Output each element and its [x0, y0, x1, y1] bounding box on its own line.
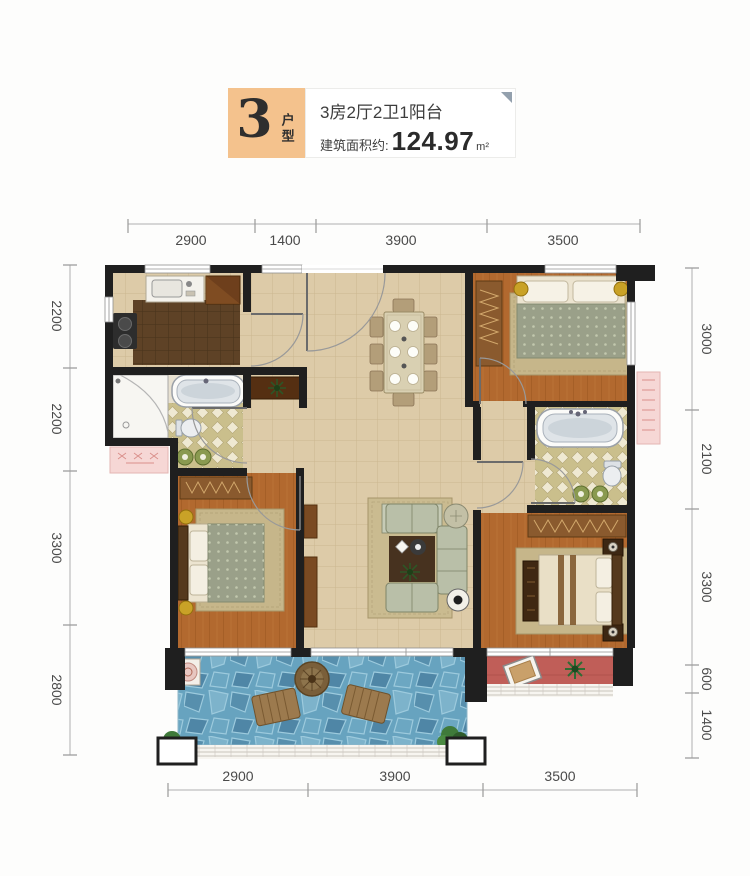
headboard [612, 555, 622, 625]
dimension-top: 2900 1400 3900 3500 [128, 219, 640, 248]
headboard [178, 526, 188, 600]
pillow [596, 558, 612, 588]
dim-label: 2200 [49, 403, 65, 434]
dining-chair [424, 371, 437, 391]
dining-chair [424, 317, 437, 337]
dining-chair [370, 371, 383, 391]
floorplan-page: { "header": { "unit_number": "3", "unit_… [0, 0, 750, 876]
dim-label: 2900 [222, 768, 253, 784]
sofa [437, 526, 467, 594]
red-balcony-window [487, 648, 613, 656]
dim-label: 2800 [49, 674, 65, 705]
pillow [523, 281, 568, 302]
wardrobe [528, 515, 626, 537]
window [145, 265, 210, 273]
tv-cabinet [304, 505, 317, 538]
ac-platform [110, 447, 168, 473]
railing-pier [447, 738, 485, 764]
master-bedroom [516, 515, 634, 641]
window [545, 265, 616, 273]
pillow [596, 592, 612, 622]
dim-label: 2100 [699, 443, 715, 474]
dim-label: 3900 [379, 768, 410, 784]
shower-cabin [113, 375, 168, 438]
wardrobe [180, 477, 252, 499]
dim-label: 3900 [385, 232, 416, 248]
dim-label: 3500 [544, 768, 575, 784]
window [262, 265, 302, 273]
kitchen-sink [152, 280, 182, 297]
dim-label: 600 [699, 667, 715, 691]
dining-chair [393, 299, 414, 312]
dining-chair [370, 344, 383, 364]
dimension-right: 3000 2100 3300 600 1400 [685, 268, 715, 758]
pillow [573, 281, 618, 302]
dim-label: 3000 [699, 323, 715, 354]
dimension-bottom: 2900 3900 3500 [168, 768, 637, 797]
dim-label: 3500 [547, 232, 578, 248]
dining-chair [424, 344, 437, 364]
bed-bench [523, 561, 539, 621]
dimension-left: 2200 2200 3300 2800 [49, 265, 77, 755]
railing-pier [158, 738, 196, 764]
dim-label: 1400 [699, 709, 715, 740]
ac-platform [637, 372, 660, 444]
floor-plan: 2900 1400 3900 3500 2200 2200 3300 2800 … [0, 0, 750, 876]
kitchen-floor [133, 300, 240, 365]
dim-label: 3300 [49, 532, 65, 563]
tv-cabinet [304, 557, 317, 627]
dim-label: 2900 [175, 232, 206, 248]
window [105, 297, 113, 322]
pillow [190, 565, 208, 595]
dim-label: 1400 [269, 232, 300, 248]
dim-label: 2200 [49, 300, 65, 331]
balcony-window [185, 648, 291, 656]
bedroom-top-right [476, 276, 632, 375]
balcony-slider [311, 648, 453, 656]
dining-chair [393, 393, 414, 406]
window [627, 302, 635, 365]
pillow [190, 531, 208, 561]
dim-label: 3300 [699, 571, 715, 602]
dining-chair [370, 317, 383, 337]
